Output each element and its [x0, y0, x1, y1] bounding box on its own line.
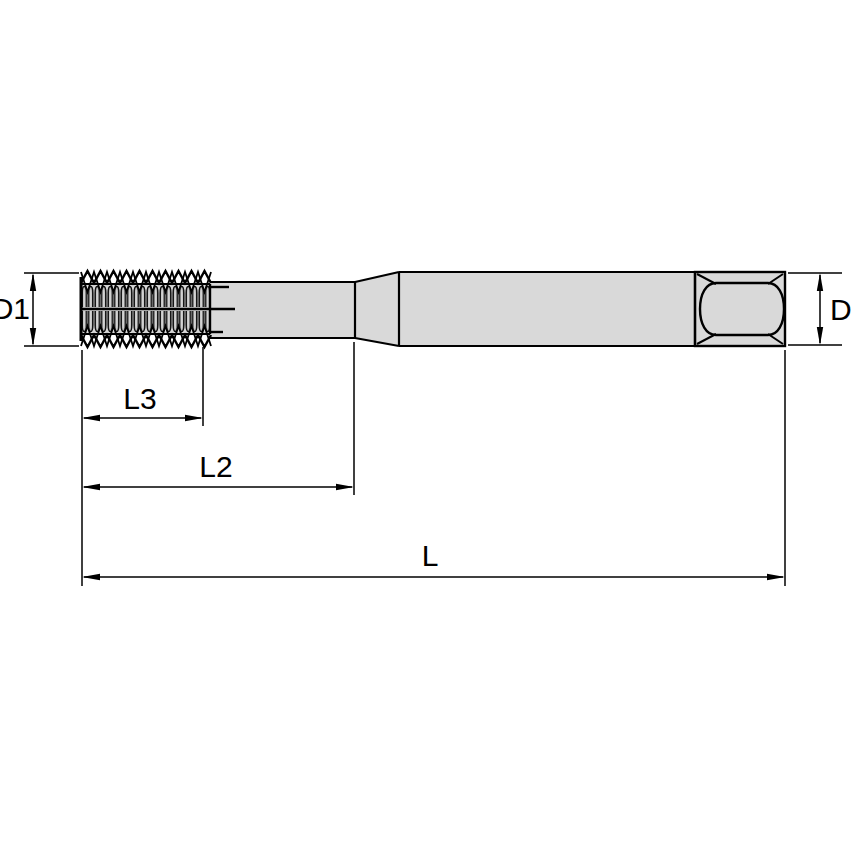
label-l: L: [422, 539, 439, 572]
label-d1: D1: [0, 292, 30, 325]
drawing-canvas: D1 D L3 L2 L: [0, 0, 854, 854]
l2-arrow-right: [336, 484, 354, 490]
d1-arrow-up: [30, 273, 36, 291]
tap-technical-drawing: D1 D L3 L2 L: [0, 0, 854, 854]
thread-flank-band-top: [81, 285, 211, 307]
l-arrow-right: [767, 574, 785, 580]
l3-arrow-right: [185, 415, 203, 421]
thread-flank-band-bottom: [81, 311, 211, 333]
shank-fill: [399, 272, 695, 346]
d-arrow-up: [817, 273, 823, 291]
l-arrow-left: [82, 574, 100, 580]
d1-arrow-down: [30, 328, 36, 346]
d-arrow-down: [817, 327, 823, 345]
taper-fill: [355, 272, 399, 346]
l3-arrow-left: [82, 415, 100, 421]
l2-arrow-left: [82, 484, 100, 490]
label-l2: L2: [199, 450, 232, 483]
label-d: D: [830, 293, 852, 326]
label-l3: L3: [123, 382, 156, 415]
